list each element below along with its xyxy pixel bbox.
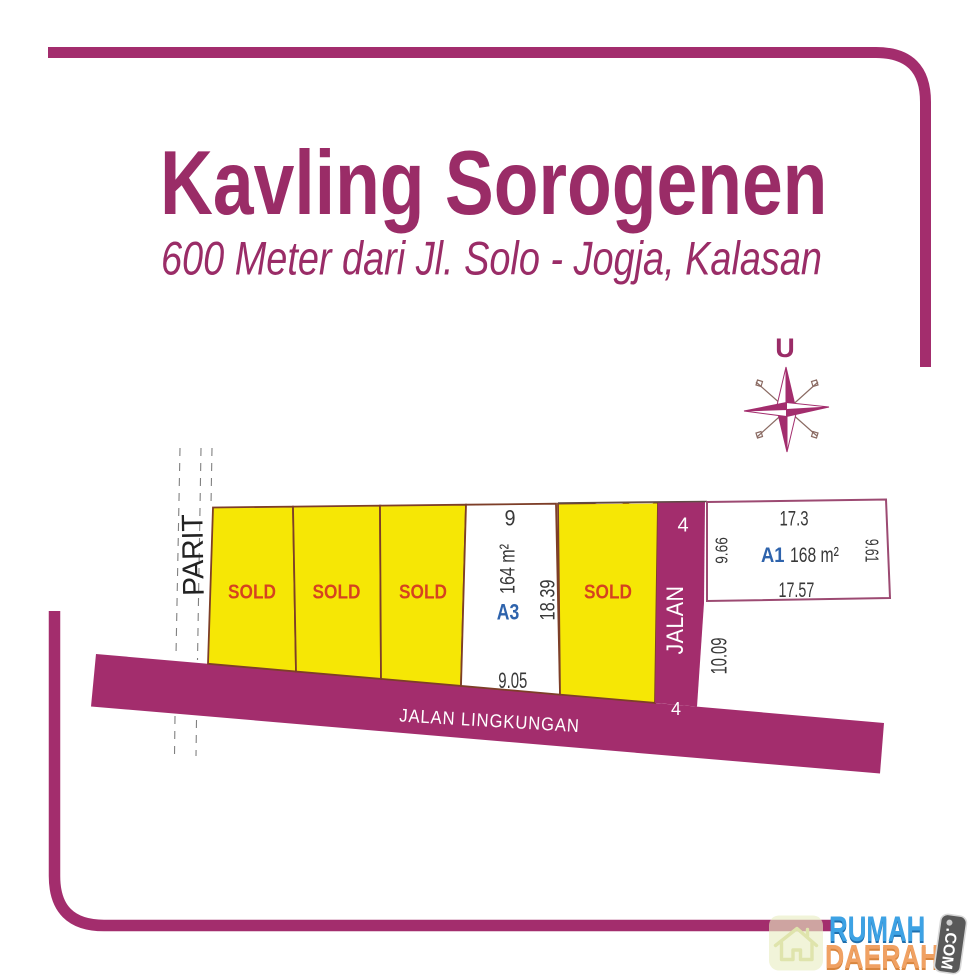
svg-text:17.3: 17.3: [779, 507, 808, 530]
svg-text:4: 4: [671, 699, 681, 719]
svg-text:18.39: 18.39: [536, 580, 559, 621]
svg-text:4: 4: [677, 514, 688, 536]
svg-text:DAERAH: DAERAH: [825, 939, 939, 975]
svg-text:SOLD: SOLD: [313, 580, 361, 602]
svg-text:17.57: 17.57: [779, 578, 815, 601]
svg-text:SOLD: SOLD: [584, 580, 632, 602]
svg-text:9.05: 9.05: [498, 668, 527, 693]
svg-text:SOLD: SOLD: [399, 580, 447, 602]
svg-text:A3: A3: [497, 601, 519, 625]
svg-text:PARIT: PARIT: [177, 514, 211, 596]
svg-text:Kavling Sorogenen: Kavling Sorogenen: [160, 131, 827, 233]
svg-text:164 m²: 164 m²: [495, 544, 519, 594]
svg-text:9.66: 9.66: [713, 537, 732, 564]
svg-text:SOLD: SOLD: [228, 580, 276, 602]
svg-text:U: U: [775, 333, 795, 363]
svg-text:10.09: 10.09: [707, 638, 732, 675]
svg-text:168 m²: 168 m²: [790, 543, 839, 567]
svg-text:JALAN: JALAN: [661, 586, 688, 655]
svg-text:9.61: 9.61: [861, 539, 881, 562]
svg-text:9: 9: [504, 507, 515, 531]
svg-text:A1: A1: [761, 544, 785, 568]
svg-text:600 Meter dari Jl. Solo - Jogj: 600 Meter dari Jl. Solo - Jogja, Kalasan: [161, 233, 822, 286]
